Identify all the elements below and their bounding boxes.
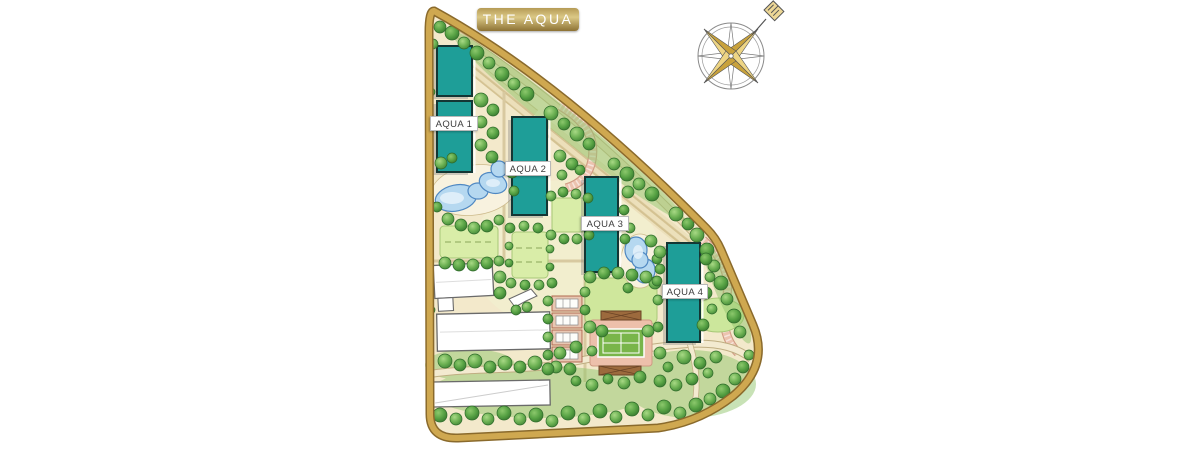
compass-rose-icon — [698, 1, 784, 89]
building-label-aqua-3: AQUA 3 — [581, 216, 629, 231]
building-label-aqua-2: AQUA 2 — [505, 161, 551, 176]
building-label-aqua-1: AQUA 1 — [430, 116, 478, 131]
site-title-banner: THE AQUA — [477, 8, 579, 31]
site-plan: THE AQUA AQUA 1 AQUA 2 AQUA 3 AQUA 4 — [0, 0, 1200, 450]
tennis-court — [590, 311, 652, 375]
north-flag-icon — [764, 1, 784, 21]
building-label-aqua-4: AQUA 4 — [662, 284, 708, 299]
